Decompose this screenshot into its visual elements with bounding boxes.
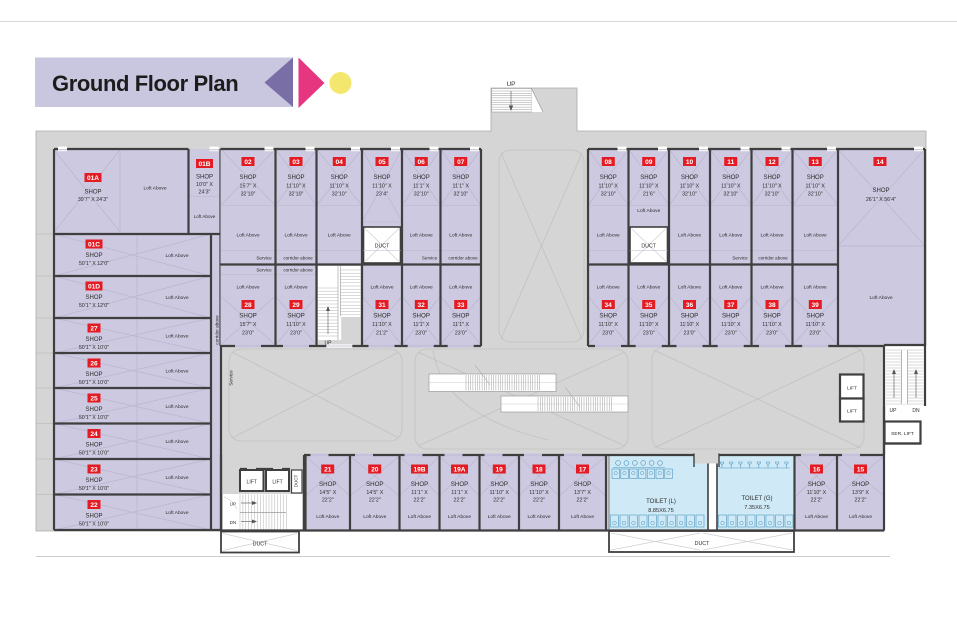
svg-text:Loft Above: Loft Above (597, 285, 620, 291)
svg-text:Loft Above: Loft Above (637, 285, 660, 291)
svg-text:36: 36 (686, 302, 694, 309)
svg-text:50’1" X 12’0": 50’1" X 12’0" (79, 303, 109, 309)
svg-text:13’7" X: 13’7" X (574, 490, 591, 496)
svg-text:11’1" X: 11’1" X (411, 490, 428, 496)
svg-text:11’10" X: 11’10" X (639, 322, 659, 328)
svg-text:50’1" X 10’0": 50’1" X 10’0" (79, 451, 109, 457)
svg-text:Loft Above: Loft Above (804, 285, 827, 291)
svg-text:SHOP: SHOP (806, 313, 824, 320)
svg-text:32’10": 32’10" (414, 192, 429, 198)
svg-text:11’10" X: 11’10" X (805, 184, 825, 190)
svg-text:17: 17 (579, 467, 587, 474)
svg-text:corridor above: corridor above (283, 256, 313, 261)
svg-text:15’7" X: 15’7" X (240, 322, 257, 328)
svg-text:19A: 19A (453, 467, 465, 474)
svg-text:11’1" X: 11’1" X (451, 490, 468, 496)
svg-text:Loft Above: Loft Above (410, 233, 433, 239)
svg-text:Loft Above: Loft Above (527, 514, 550, 520)
svg-text:29: 29 (292, 302, 300, 309)
svg-text:SHOP: SHOP (452, 175, 469, 181)
svg-text:Loft Above: Loft Above (804, 233, 827, 239)
svg-text:11’10" X: 11’10" X (721, 322, 741, 328)
svg-text:50’1" X 10’0": 50’1" X 10’0" (79, 345, 109, 351)
svg-text:24: 24 (90, 431, 98, 438)
svg-text:32’10": 32’10" (808, 192, 823, 198)
svg-text:01D: 01D (88, 284, 100, 291)
svg-text:DN: DN (912, 408, 920, 414)
svg-text:11’10" X: 11’10" X (372, 184, 392, 190)
svg-text:04: 04 (336, 159, 344, 166)
svg-text:Service: Service (422, 256, 438, 261)
svg-text:22’2": 22’2" (577, 498, 589, 504)
svg-text:Loft Above: Loft Above (316, 514, 339, 520)
svg-text:SHOP: SHOP (411, 481, 429, 488)
svg-text:10’0" X: 10’0" X (196, 182, 213, 188)
svg-text:21: 21 (324, 467, 332, 474)
svg-text:SHOP: SHOP (85, 372, 102, 378)
svg-text:SHOP: SHOP (681, 313, 699, 320)
svg-text:11’1" X: 11’1" X (453, 184, 470, 190)
svg-text:SHOP: SHOP (722, 313, 740, 320)
svg-text:Loft Above: Loft Above (719, 233, 742, 239)
svg-text:11’10" X: 11’10" X (680, 322, 700, 328)
svg-text:32: 32 (418, 302, 426, 309)
svg-text:LIFT: LIFT (272, 480, 282, 486)
svg-text:Loft Above: Loft Above (678, 233, 701, 239)
svg-text:SHOP: SHOP (287, 175, 304, 181)
svg-text:Loft Above: Loft Above (165, 510, 188, 516)
svg-text:23’0": 23’0" (643, 331, 655, 337)
svg-text:Loft Above: Loft Above (849, 514, 872, 520)
svg-text:23’0": 23’0" (455, 331, 467, 337)
svg-text:SHOP: SHOP (84, 190, 101, 196)
svg-text:SHOP: SHOP (366, 481, 384, 488)
svg-text:SER. LIFT: SER. LIFT (891, 431, 914, 437)
svg-text:Loft Above: Loft Above (143, 186, 166, 192)
svg-text:11’1" X: 11’1" X (413, 184, 430, 190)
svg-text:SHOP: SHOP (287, 313, 305, 320)
svg-text:Service: Service (732, 256, 748, 261)
svg-text:Loft Above: Loft Above (236, 285, 259, 291)
svg-text:SHOP: SHOP (807, 175, 824, 181)
svg-text:15: 15 (857, 467, 865, 474)
svg-text:21’6": 21’6" (643, 192, 655, 198)
svg-text:11’10" X: 11’10" X (598, 322, 618, 328)
svg-text:32’10": 32’10" (241, 192, 256, 198)
svg-text:Loft Above: Loft Above (165, 439, 188, 445)
svg-text:SHOP: SHOP (872, 188, 889, 194)
svg-text:11’10" X: 11’10" X (680, 184, 700, 190)
svg-text:14’5" X: 14’5" X (319, 490, 336, 496)
svg-text:32’10": 32’10" (682, 192, 697, 198)
svg-text:11: 11 (727, 159, 734, 166)
svg-text:SHOP: SHOP (85, 478, 102, 484)
svg-text:31: 31 (378, 302, 386, 309)
svg-text:22’2": 22’2" (414, 498, 426, 504)
svg-text:23’0": 23’0" (809, 331, 821, 337)
svg-text:18: 18 (535, 467, 543, 474)
svg-text:01A: 01A (87, 175, 99, 182)
svg-text:SHOP: SHOP (85, 443, 102, 449)
svg-text:Loft Above: Loft Above (449, 285, 472, 291)
svg-text:DUCT: DUCT (253, 542, 268, 548)
svg-text:Loft Above: Loft Above (328, 233, 351, 239)
svg-text:Service: Service (229, 370, 234, 386)
svg-text:LIFT: LIFT (247, 480, 257, 486)
svg-text:06: 06 (418, 159, 426, 166)
svg-text:11’10" X: 11’10" X (721, 184, 741, 190)
svg-text:Loft Above: Loft Above (805, 514, 828, 520)
svg-text:corridor above: corridor above (758, 256, 788, 261)
svg-text:32’10": 32’10" (332, 192, 347, 198)
svg-text:corridor above: corridor above (283, 268, 313, 273)
svg-text:11’10" X: 11’10" X (489, 490, 509, 496)
svg-text:DUCT: DUCT (695, 541, 710, 547)
svg-text:SHOP: SHOP (763, 175, 780, 181)
svg-text:22’2": 22’2" (369, 498, 381, 504)
svg-text:SHOP: SHOP (530, 481, 548, 488)
svg-text:SHOP: SHOP (85, 407, 102, 413)
svg-text:SHOP: SHOP (85, 295, 102, 301)
svg-text:11’10" X: 11’10" X (286, 184, 306, 190)
svg-text:26: 26 (90, 361, 98, 368)
svg-text:16: 16 (813, 467, 821, 474)
svg-text:10: 10 (686, 159, 694, 166)
svg-text:Loft Above: Loft Above (284, 233, 307, 239)
svg-text:39: 39 (812, 302, 820, 309)
svg-text:01B: 01B (198, 161, 210, 168)
svg-text:DN: DN (230, 520, 237, 525)
svg-text:23’0": 23’0" (602, 331, 614, 337)
svg-text:Loft Above: Loft Above (760, 285, 783, 291)
svg-text:SHOP: SHOP (722, 175, 739, 181)
svg-text:SHOP: SHOP (808, 481, 826, 488)
svg-text:11’10" X: 11’10" X (639, 184, 659, 190)
svg-text:23’0": 23’0" (242, 331, 254, 337)
svg-text:Loft Above: Loft Above (165, 404, 188, 410)
svg-text:UP: UP (230, 502, 236, 507)
svg-text:03: 03 (292, 159, 300, 166)
svg-text:27: 27 (90, 326, 98, 333)
svg-text:SHOP: SHOP (490, 481, 508, 488)
svg-text:Loft Above: Loft Above (410, 285, 433, 291)
svg-text:22’2": 22’2" (533, 498, 545, 504)
svg-text:SHOP: SHOP (85, 514, 102, 520)
svg-text:DUCT: DUCT (641, 244, 656, 250)
svg-text:SHOP: SHOP (239, 313, 257, 320)
svg-text:Loft Above: Loft Above (571, 514, 594, 520)
svg-text:Service: Service (256, 256, 272, 261)
svg-text:09: 09 (645, 159, 653, 166)
svg-text:21’2": 21’2" (376, 331, 388, 337)
svg-text:11’10" X: 11’10" X (529, 490, 549, 496)
svg-text:11’10" X: 11’10" X (805, 322, 825, 328)
svg-text:SHOP: SHOP (319, 481, 337, 488)
svg-text:Loft Above: Loft Above (678, 285, 701, 291)
svg-text:50’1" X 10’0": 50’1" X 10’0" (79, 486, 109, 492)
svg-text:23’0": 23’0" (290, 331, 302, 337)
svg-text:SHOP: SHOP (331, 175, 348, 181)
svg-text:19: 19 (496, 467, 504, 474)
svg-text:UP: UP (890, 408, 898, 414)
svg-text:SHOP: SHOP (85, 253, 102, 259)
svg-text:SHOP: SHOP (85, 337, 102, 343)
svg-text:26’1" X 56’4": 26’1" X 56’4" (866, 197, 896, 203)
svg-text:05: 05 (378, 159, 386, 166)
svg-text:22: 22 (90, 502, 98, 509)
svg-text:8.85X6.75: 8.85X6.75 (648, 508, 674, 514)
svg-text:Loft Above: Loft Above (637, 208, 660, 214)
svg-text:02: 02 (244, 159, 252, 166)
svg-text:50’1" X 10’0": 50’1" X 10’0" (79, 415, 109, 421)
svg-text:50’1" X 12’0": 50’1" X 12’0" (79, 261, 109, 267)
svg-text:SHOP: SHOP (640, 313, 658, 320)
svg-text:11’10" X: 11’10" X (329, 184, 349, 190)
svg-text:SHOP: SHOP (239, 175, 256, 181)
svg-text:25: 25 (90, 396, 98, 403)
svg-text:SHOP: SHOP (681, 175, 698, 181)
svg-text:11’1" X: 11’1" X (413, 322, 430, 328)
svg-text:12: 12 (768, 159, 776, 166)
svg-text:08: 08 (605, 159, 613, 166)
svg-text:14: 14 (876, 159, 884, 166)
svg-text:Loft Above: Loft Above (449, 233, 472, 239)
svg-text:22’2": 22’2" (855, 498, 867, 504)
svg-text:32’10": 32’10" (765, 192, 780, 198)
svg-text:20: 20 (371, 467, 379, 474)
svg-text:TOILET (L): TOILET (L) (646, 499, 676, 505)
svg-text:Loft Above: Loft Above (165, 475, 188, 481)
svg-text:07: 07 (457, 159, 465, 166)
svg-text:34: 34 (605, 302, 613, 309)
svg-text:SHOP: SHOP (763, 313, 781, 320)
svg-text:37: 37 (727, 302, 735, 309)
svg-text:23’0": 23’0" (684, 331, 696, 337)
svg-text:50’1" X 10’0": 50’1" X 10’0" (79, 380, 109, 386)
svg-text:SHOP: SHOP (196, 175, 213, 181)
svg-text:23’0": 23’0" (766, 331, 778, 337)
svg-text:11’10" X: 11’10" X (762, 184, 782, 190)
svg-text:TOILET (G): TOILET (G) (741, 496, 772, 502)
svg-text:Loft Above: Loft Above (165, 295, 188, 301)
svg-text:24’3": 24’3" (199, 190, 211, 196)
svg-text:32’10": 32’10" (601, 192, 616, 198)
svg-text:32’10": 32’10" (453, 192, 468, 198)
svg-text:7.35X6.75: 7.35X6.75 (744, 505, 770, 511)
svg-text:11’1" X: 11’1" X (453, 322, 470, 328)
svg-text:13: 13 (812, 159, 820, 166)
svg-text:13’9" X: 13’9" X (852, 490, 869, 496)
svg-text:Loft Above: Loft Above (284, 285, 307, 291)
svg-text:SHOP: SHOP (413, 175, 430, 181)
svg-text:SHOP: SHOP (600, 175, 617, 181)
svg-text:Loft Above: Loft Above (370, 285, 393, 291)
svg-text:Loft Above: Loft Above (165, 369, 188, 375)
svg-text:Loft Above: Loft Above (194, 214, 216, 219)
svg-text:SHOP: SHOP (451, 481, 469, 488)
svg-text:Loft Above: Loft Above (597, 233, 620, 239)
svg-text:38: 38 (768, 302, 776, 309)
svg-text:Loft Above: Loft Above (488, 514, 511, 520)
svg-text:32’10": 32’10" (289, 192, 304, 198)
svg-text:LIFT: LIFT (847, 409, 857, 415)
svg-text:SHOP: SHOP (574, 481, 592, 488)
svg-text:Ground Floor Plan: Ground Floor Plan (52, 71, 238, 96)
svg-text:SHOP: SHOP (373, 175, 390, 181)
svg-text:Loft Above: Loft Above (363, 514, 386, 520)
svg-text:22’2": 22’2" (493, 498, 505, 504)
svg-text:Loft Above: Loft Above (236, 233, 259, 239)
svg-text:corridor above: corridor above (448, 256, 478, 261)
svg-text:11’10" X: 11’10" X (598, 184, 618, 190)
svg-text:15’7" X: 15’7" X (240, 184, 257, 190)
svg-text:corridor above: corridor above (215, 315, 220, 345)
svg-text:Loft Above: Loft Above (165, 253, 188, 259)
svg-text:DUCT: DUCT (294, 474, 299, 487)
svg-text:Loft Above: Loft Above (448, 514, 471, 520)
svg-text:50’1" X 10’0": 50’1" X 10’0" (79, 522, 109, 528)
svg-text:22’2": 22’2" (454, 498, 466, 504)
svg-text:11’10" X: 11’10" X (372, 322, 392, 328)
svg-text:01C: 01C (88, 242, 100, 249)
svg-text:11’10" X: 11’10" X (286, 322, 306, 328)
svg-text:39’7" X 24’3": 39’7" X 24’3" (78, 197, 108, 203)
svg-text:SHOP: SHOP (852, 481, 870, 488)
svg-text:Loft Above: Loft Above (165, 334, 188, 340)
svg-text:22’2": 22’2" (322, 498, 334, 504)
svg-text:DUCT: DUCT (375, 244, 390, 250)
svg-text:33: 33 (457, 302, 465, 309)
svg-text:23’0": 23’0" (725, 331, 737, 337)
svg-text:19B: 19B (413, 467, 425, 474)
svg-text:Service: Service (256, 268, 272, 273)
svg-text:SHOP: SHOP (599, 313, 617, 320)
svg-text:14’5" X: 14’5" X (366, 490, 383, 496)
svg-text:11’10" X: 11’10" X (762, 322, 782, 328)
svg-text:SHOP: SHOP (412, 313, 430, 320)
svg-text:23: 23 (90, 467, 98, 474)
svg-text:SHOP: SHOP (640, 175, 657, 181)
svg-text:Loft Above: Loft Above (408, 514, 431, 520)
svg-text:28: 28 (244, 302, 252, 309)
svg-text:UP: UP (506, 81, 515, 88)
svg-text:35: 35 (645, 302, 653, 309)
svg-text:32’10": 32’10" (723, 192, 738, 198)
svg-text:LIFT: LIFT (847, 386, 857, 392)
svg-text:Loft Above: Loft Above (719, 285, 742, 291)
svg-text:Loft Above: Loft Above (869, 295, 892, 301)
svg-text:23’4": 23’4" (376, 192, 388, 198)
svg-text:23’0": 23’0" (415, 331, 427, 337)
svg-text:22’2": 22’2" (811, 498, 823, 504)
svg-text:SHOP: SHOP (373, 313, 391, 320)
svg-text:SHOP: SHOP (452, 313, 470, 320)
svg-text:11’10" X: 11’10" X (807, 490, 827, 496)
svg-text:Loft Above: Loft Above (760, 233, 783, 239)
